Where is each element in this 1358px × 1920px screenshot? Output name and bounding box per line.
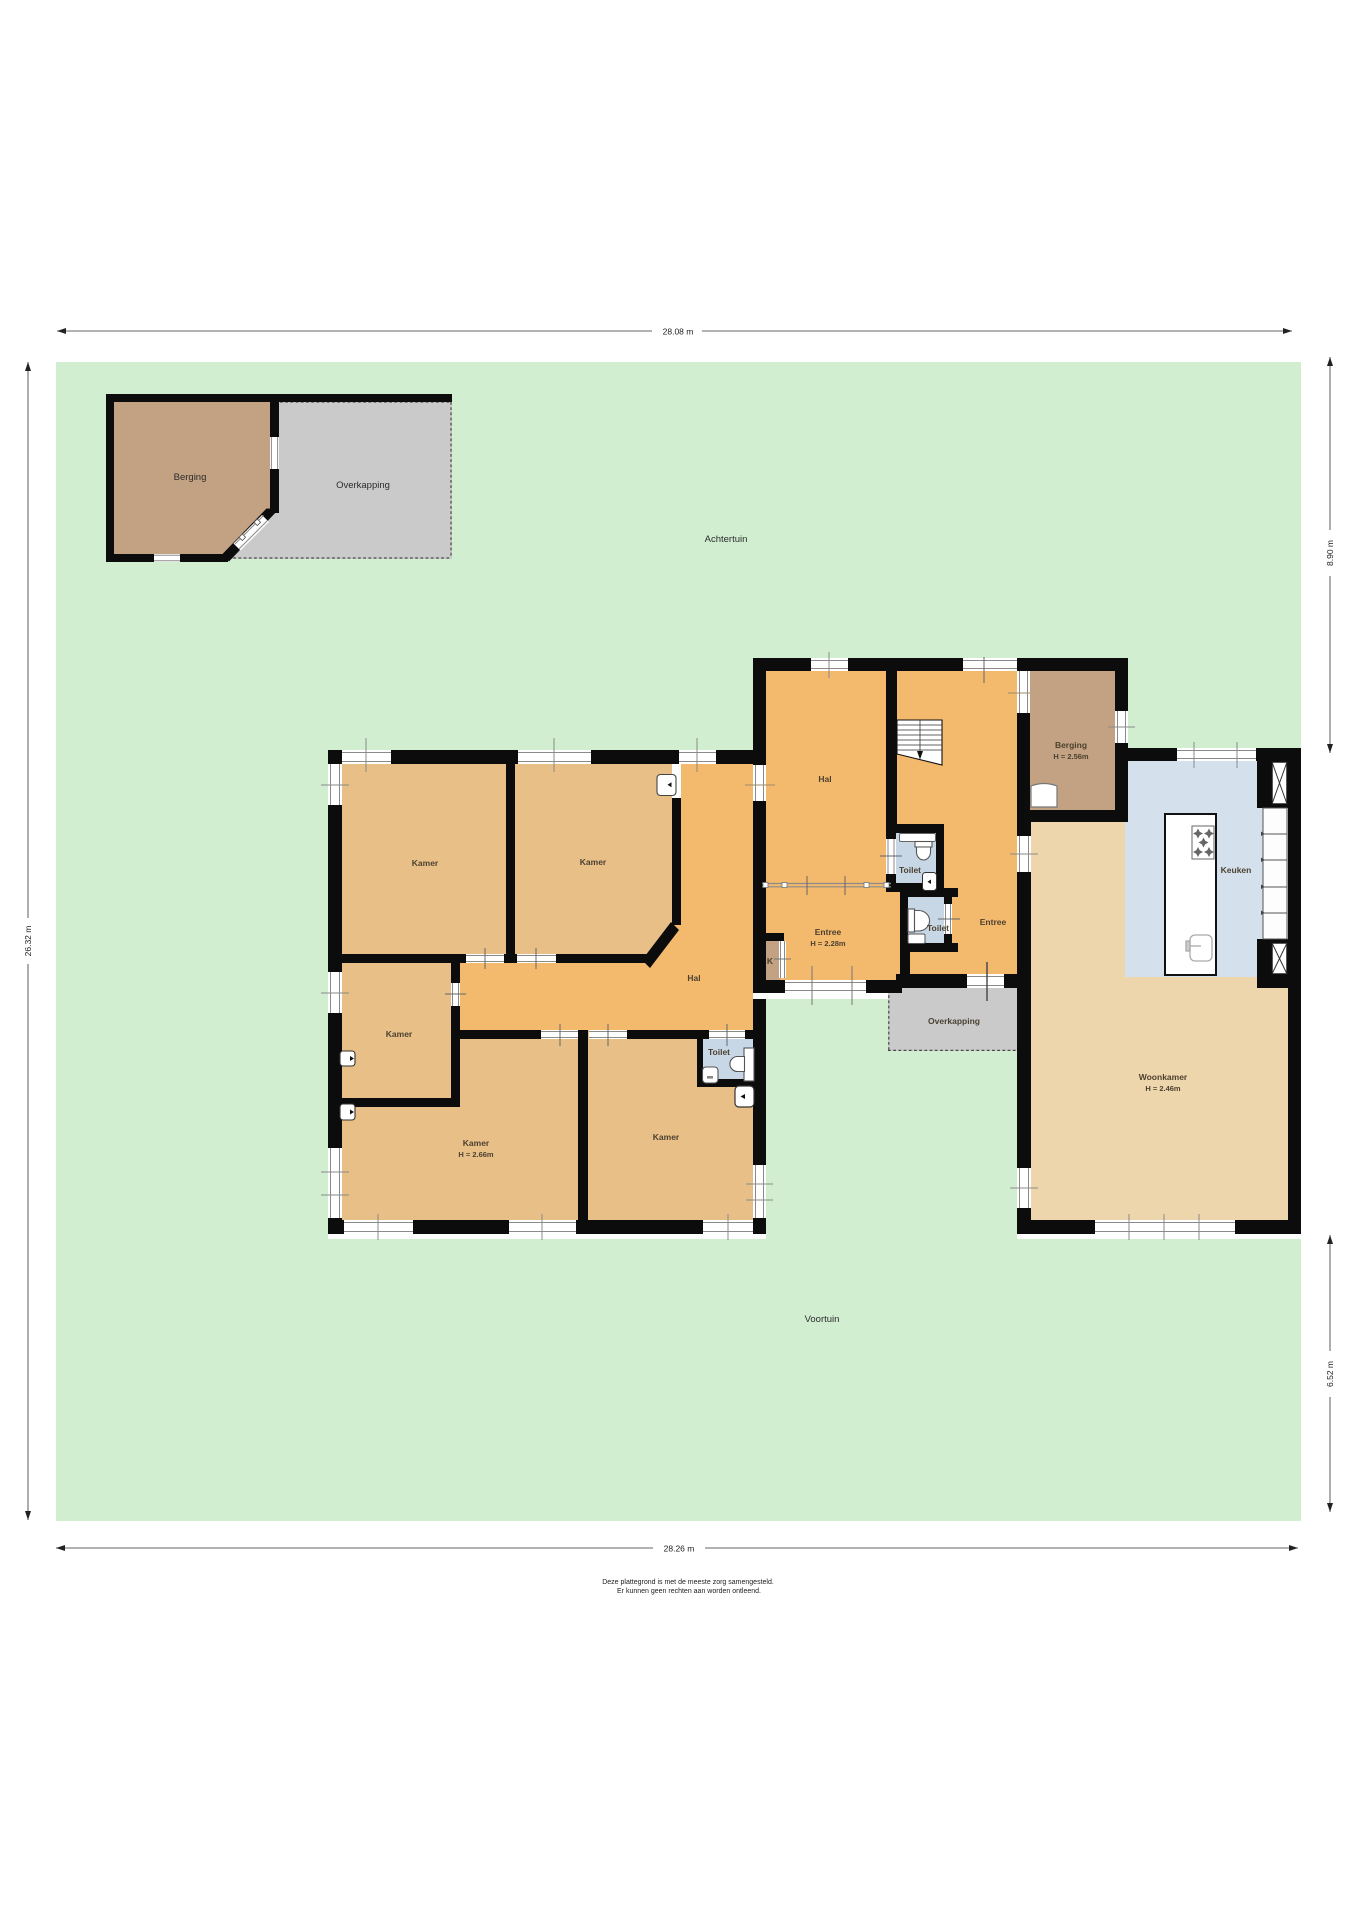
svg-text:K: K — [767, 956, 774, 966]
svg-text:Toilet: Toilet — [708, 1047, 730, 1057]
svg-text:Toilet: Toilet — [899, 865, 921, 875]
svg-text:26.32 m: 26.32 m — [23, 926, 33, 957]
svg-text:Overkapping: Overkapping — [928, 1016, 980, 1026]
svg-text:Er kunnen geen rechten aan wor: Er kunnen geen rechten aan worden ontlee… — [617, 1588, 761, 1595]
svg-text:Kamer: Kamer — [386, 1029, 413, 1039]
svg-text:Berging: Berging — [174, 472, 207, 483]
svg-text:Voortuin: Voortuin — [805, 1314, 840, 1325]
svg-text:Kamer: Kamer — [653, 1132, 680, 1142]
svg-text:H = 2.56m: H = 2.56m — [1053, 752, 1089, 761]
svg-text:Keuken: Keuken — [1221, 865, 1252, 875]
svg-text:6.52 m: 6.52 m — [1325, 1361, 1335, 1387]
svg-text:H = 2.28m: H = 2.28m — [810, 939, 846, 948]
svg-text:28.26 m: 28.26 m — [664, 1544, 695, 1554]
svg-text:Hal: Hal — [818, 774, 831, 784]
svg-text:Entree: Entree — [815, 927, 842, 937]
svg-text:Deze plattegrond is met de mee: Deze plattegrond is met de meeste zorg s… — [602, 1579, 774, 1586]
svg-text:28.08 m: 28.08 m — [663, 327, 694, 337]
svg-text:Kamer: Kamer — [580, 857, 607, 867]
svg-text:Hal: Hal — [687, 973, 700, 983]
svg-text:H = 2.66m: H = 2.66m — [458, 1150, 494, 1159]
svg-text:Overkapping: Overkapping — [336, 480, 390, 491]
svg-text:8.90 m: 8.90 m — [1325, 540, 1335, 566]
svg-text:Woonkamer: Woonkamer — [1139, 1072, 1188, 1082]
svg-text:Entree: Entree — [980, 917, 1007, 927]
svg-text:Achtertuin: Achtertuin — [705, 534, 748, 545]
svg-text:Berging: Berging — [1055, 740, 1087, 750]
svg-text:H = 2.46m: H = 2.46m — [1145, 1084, 1181, 1093]
svg-text:Kamer: Kamer — [463, 1138, 490, 1148]
svg-text:Kamer: Kamer — [412, 858, 439, 868]
svg-text:Toilet: Toilet — [927, 923, 949, 933]
